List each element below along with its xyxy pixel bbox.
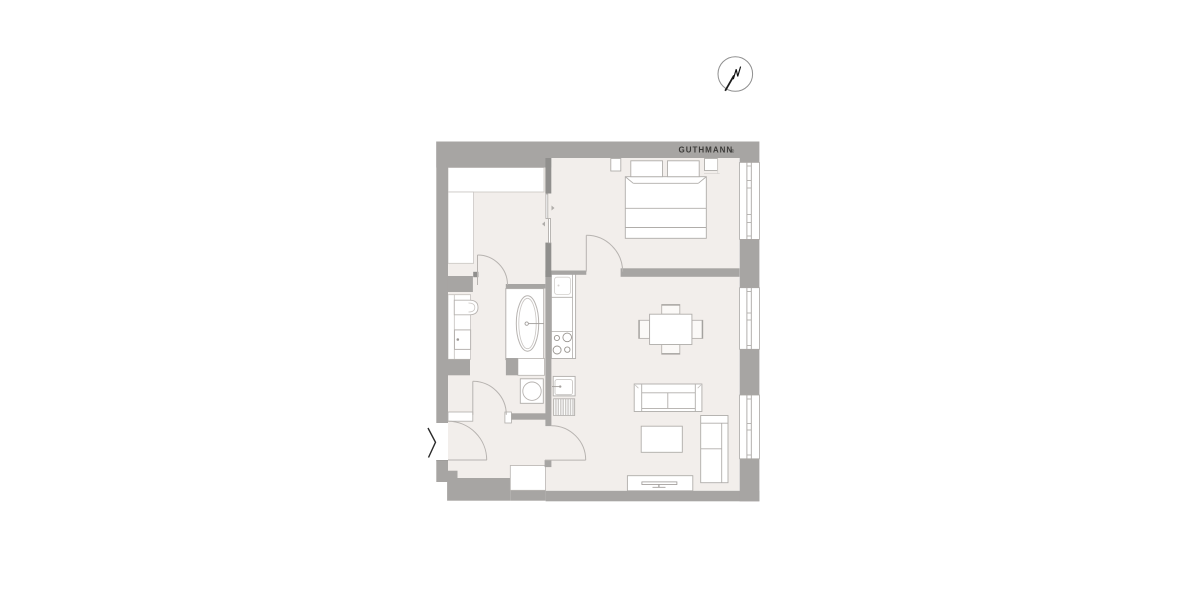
svg-text:GUTHMANN: GUTHMANN [679, 145, 734, 154]
svg-text:®: ® [730, 148, 734, 155]
